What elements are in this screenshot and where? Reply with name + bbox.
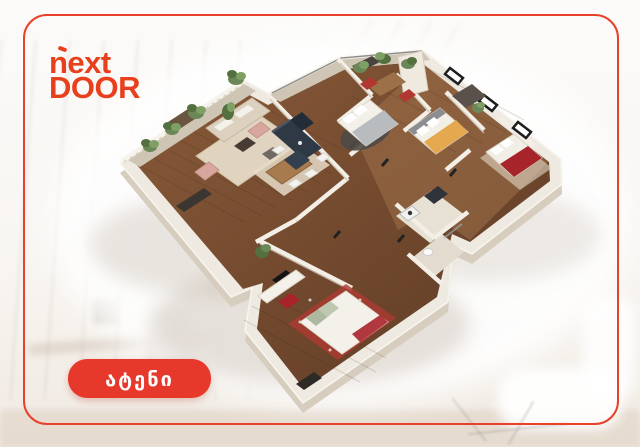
ad-banner: { "frame": { "border_color": "#E8402A" }… (0, 0, 640, 447)
logo-text-door: DOOR (49, 70, 140, 105)
location-badge-button[interactable]: ატენი (68, 359, 211, 398)
nextdoor-logo: next DOOR (49, 50, 140, 100)
toilet (423, 249, 433, 256)
location-badge-label: ატენი (105, 367, 174, 391)
logo-line-2: DOOR (49, 75, 140, 100)
